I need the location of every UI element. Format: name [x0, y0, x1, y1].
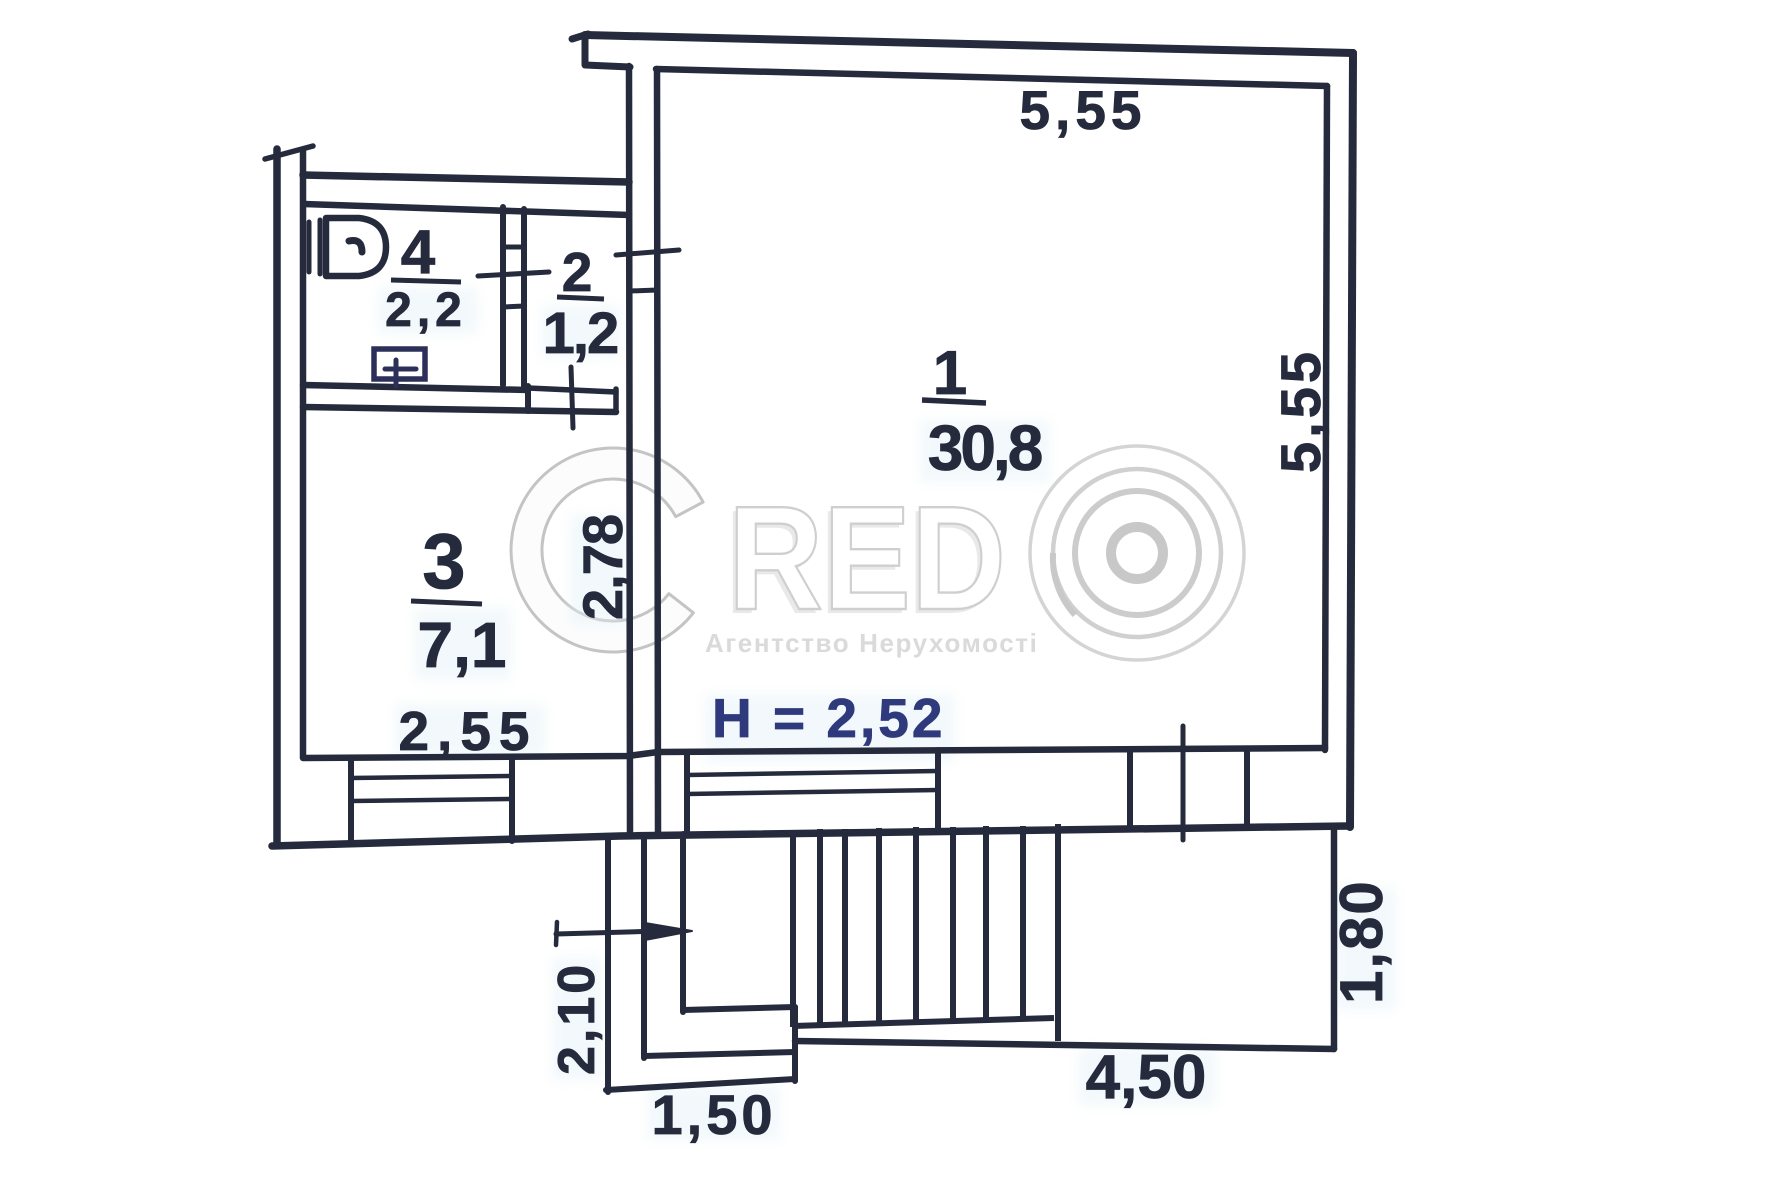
- svg-text:4,50: 4,50: [1086, 1043, 1207, 1112]
- svg-text:3: 3: [422, 517, 465, 605]
- svg-text:RED: RED: [728, 476, 1006, 641]
- svg-text:2,55: 2,55: [398, 700, 537, 762]
- svg-text:30,8: 30,8: [928, 412, 1042, 484]
- svg-text:1,80: 1,80: [1328, 879, 1395, 1004]
- svg-text:2: 2: [562, 241, 593, 303]
- svg-text:2,78: 2,78: [571, 515, 634, 620]
- svg-text:1: 1: [933, 339, 967, 408]
- svg-text:1,2: 1,2: [543, 301, 618, 366]
- svg-text:2,2: 2,2: [385, 284, 467, 337]
- svg-text:7,1: 7,1: [418, 609, 507, 681]
- svg-text:5,55: 5,55: [1019, 79, 1146, 141]
- svg-text:1,50: 1,50: [652, 1083, 777, 1146]
- svg-text:4: 4: [401, 218, 436, 287]
- svg-text:5,55: 5,55: [1269, 348, 1332, 473]
- svg-text:2,10: 2,10: [548, 962, 606, 1075]
- svg-text:Агентство Нерухомості: Агентство Нерухомості: [705, 628, 1038, 658]
- svg-text:H = 2,52: H = 2,52: [712, 687, 945, 749]
